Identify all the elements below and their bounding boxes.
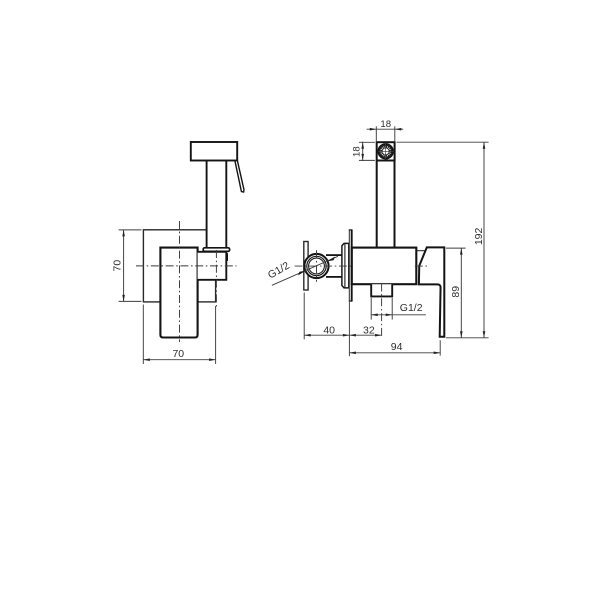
svg-text:70: 70: [172, 348, 184, 360]
svg-text:70: 70: [112, 260, 124, 272]
svg-text:G1/2: G1/2: [400, 302, 423, 314]
svg-text:94: 94: [391, 341, 403, 353]
svg-text:89: 89: [450, 286, 462, 298]
svg-text:40: 40: [323, 325, 335, 337]
svg-text:18: 18: [380, 119, 391, 130]
svg-text:192: 192: [473, 227, 485, 245]
svg-text:18: 18: [352, 146, 363, 157]
svg-text:32: 32: [363, 324, 375, 336]
